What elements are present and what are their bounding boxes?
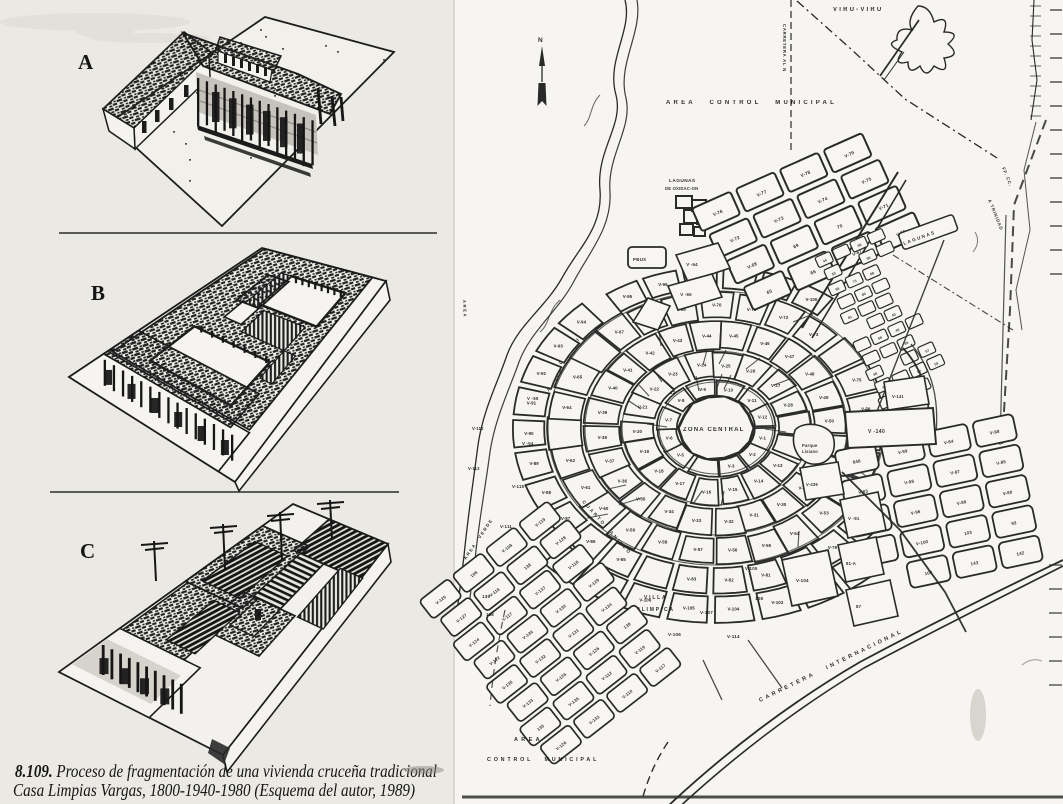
svg-text:V-89: V-89: [529, 461, 539, 466]
svg-text:V-6: V-6: [666, 435, 673, 440]
svg-text:V-79: V-79: [828, 545, 838, 550]
svg-text:139: 139: [482, 594, 491, 599]
svg-text:V-75: V-75: [852, 378, 862, 383]
svg-text:V-23: V-23: [668, 372, 678, 377]
svg-text:V-65: V-65: [573, 375, 583, 380]
svg-text:V-10: V-10: [724, 387, 734, 392]
svg-text:Parque: Parque: [802, 443, 818, 448]
svg-text:CONTROL MUNICIPAL: CONTROL MUNICIPAL: [487, 757, 599, 763]
svg-text:V-70: V-70: [712, 302, 722, 307]
svg-text:V-106: V-106: [668, 632, 681, 637]
svg-text:V-92: V-92: [537, 371, 547, 376]
svg-text:81-A: 81-A: [846, 561, 856, 566]
svg-text:V-25: V-25: [721, 363, 731, 368]
svg-text:V-88: V-88: [542, 490, 552, 495]
svg-text:V-100: V-100: [805, 297, 817, 302]
svg-text:V-49: V-49: [819, 395, 829, 400]
svg-text:V-31: V-31: [749, 513, 759, 518]
svg-text:V-36: V-36: [618, 478, 628, 483]
svg-text:V-12: V-12: [758, 414, 768, 419]
svg-text:N: N: [538, 37, 543, 44]
svg-text:V-90: V-90: [524, 431, 534, 436]
svg-text:V-27: V-27: [771, 383, 781, 388]
svg-text:V-34: V-34: [664, 509, 674, 514]
svg-text:V-58: V-58: [658, 539, 668, 544]
svg-text:V-39: V-39: [598, 410, 608, 415]
svg-text:A: A: [78, 50, 94, 74]
svg-text:V-85: V-85: [616, 557, 626, 562]
svg-text:V-91: V-91: [527, 400, 537, 405]
svg-text:V-11: V-11: [747, 398, 757, 403]
svg-text:V-48: V-48: [805, 371, 815, 376]
svg-text:VILLA: VILLA: [644, 595, 667, 601]
svg-text:V-20: V-20: [633, 429, 643, 434]
svg-text:V-94: V-94: [577, 320, 587, 325]
svg-text:V -54: V -54: [522, 441, 534, 446]
svg-text:V-56: V-56: [728, 547, 738, 552]
svg-text:V-30: V-30: [777, 502, 787, 507]
svg-text:ZONA CENTRAL: ZONA CENTRAL: [683, 427, 745, 433]
svg-text:V-5: V-5: [677, 452, 684, 457]
svg-text:8.109. Proceso de fragmentació: 8.109. Proceso de fragmentación de una v…: [15, 761, 437, 781]
svg-text:AREA: AREA: [462, 300, 468, 318]
svg-text:12: 12: [670, 390, 676, 395]
svg-text:Casa Limpias Vargas, 1800-1940: Casa Limpias Vargas, 1800-1940-1980 (Esq…: [13, 780, 415, 800]
svg-text:V-105: V-105: [745, 566, 758, 571]
svg-text:V-113: V-113: [468, 466, 480, 471]
svg-text:V-37: V-37: [605, 459, 615, 464]
svg-text:V -91: V -91: [848, 516, 860, 521]
svg-text:V-96: V-96: [658, 282, 668, 287]
svg-text:V-81: V-81: [761, 572, 771, 577]
svg-text:V-104: V-104: [796, 578, 809, 583]
svg-text:V-35: V-35: [636, 496, 646, 501]
svg-text:V-45: V-45: [729, 333, 739, 338]
svg-text:V-46: V-46: [760, 341, 770, 346]
svg-text:V-55: V-55: [762, 543, 772, 548]
svg-text:V -140: V -140: [868, 429, 885, 435]
svg-text:V-50: V-50: [825, 418, 835, 423]
svg-text:V-86: V-86: [586, 539, 596, 544]
svg-text:AREA CONTROL MUNICIPAL: AREA CONTROL MUNICIPAL: [666, 100, 837, 106]
svg-text:V-111: V-111: [500, 524, 512, 529]
svg-text:V-95: V-95: [623, 294, 633, 299]
svg-text:V-112: V-112: [472, 426, 484, 431]
svg-text:V-32: V-32: [724, 519, 734, 524]
svg-text:V-33: V-33: [692, 518, 702, 523]
svg-text:138: 138: [486, 612, 494, 617]
svg-text:V-115: V-115: [512, 484, 525, 489]
svg-text:PBUS: PBUS: [633, 257, 646, 262]
svg-text:C: C: [80, 539, 95, 563]
svg-text:V-60: V-60: [599, 506, 609, 511]
svg-text:V-83: V-83: [687, 577, 697, 582]
svg-text:V-141: V-141: [892, 394, 904, 399]
svg-text:V-14: V-14: [754, 479, 764, 484]
svg-text:V-8: V-8: [678, 398, 685, 403]
svg-text:AREA: AREA: [514, 737, 543, 743]
svg-text:V-67: V-67: [615, 330, 625, 335]
svg-text:V-21: V-21: [638, 405, 648, 410]
svg-text:Lisiano: Lisiano: [802, 449, 818, 454]
svg-text:V-62: V-62: [566, 458, 576, 463]
svg-text:B: B: [91, 281, 105, 305]
svg-text:V-64: V-64: [562, 405, 572, 410]
svg-text:V-41: V-41: [623, 367, 633, 372]
svg-text:V-53: V-53: [819, 511, 829, 516]
svg-text:V-7: V-7: [665, 417, 672, 422]
svg-text:VIRU-VIRU: VIRU-VIRU: [833, 7, 883, 13]
svg-text:V-22: V-22: [650, 386, 660, 391]
svg-text:OLIMPICA: OLIMPICA: [636, 607, 675, 613]
svg-text:V-2: V-2: [749, 452, 756, 457]
svg-text:V-24: V-24: [697, 363, 707, 368]
svg-text:V-42: V-42: [645, 350, 655, 355]
svg-text:V-43: V-43: [673, 338, 683, 343]
svg-text:V-44: V-44: [702, 333, 712, 338]
svg-text:V-105: V-105: [683, 606, 695, 611]
svg-text:V-61: V-61: [581, 485, 591, 490]
svg-text:V-26: V-26: [746, 369, 756, 374]
svg-text:V-72: V-72: [779, 315, 789, 320]
svg-text:V-107: V-107: [700, 610, 713, 615]
svg-text:V-59: V-59: [626, 527, 636, 532]
svg-text:87: 87: [856, 604, 862, 609]
svg-text:V-57: V-57: [693, 547, 703, 552]
svg-text:V-93: V-93: [553, 344, 563, 349]
svg-text:V -55: V -55: [527, 396, 539, 401]
svg-text:V-16: V-16: [702, 489, 712, 494]
svg-text:V-104: V-104: [727, 606, 739, 611]
svg-text:V-3: V-3: [728, 463, 735, 468]
svg-text:V-1: V-1: [759, 435, 766, 440]
svg-text:V-54: V-54: [790, 531, 800, 536]
svg-text:V-114: V-114: [727, 634, 740, 639]
svg-text:V-15: V-15: [728, 487, 738, 492]
svg-text:V-18: V-18: [654, 469, 664, 474]
svg-text:V-19: V-19: [640, 449, 650, 454]
svg-text:108: 108: [755, 596, 764, 601]
svg-text:V-40: V-40: [608, 386, 618, 391]
svg-text:LAGUNAS: LAGUNAS: [669, 178, 696, 184]
svg-text:V -64: V -64: [686, 262, 698, 267]
svg-text:V -65: V -65: [680, 292, 692, 297]
svg-text:DE OXIDAC-ON: DE OXIDAC-ON: [665, 186, 698, 191]
svg-text:V-439: V-439: [806, 482, 818, 487]
svg-text:V-9: V-9: [699, 387, 706, 392]
svg-text:V-103: V-103: [771, 600, 783, 605]
svg-text:V-47: V-47: [785, 354, 795, 359]
svg-text:V-82: V-82: [724, 578, 734, 583]
svg-text:V-38: V-38: [598, 435, 608, 440]
svg-text:CARRETERA AL N: CARRETERA AL N: [782, 24, 787, 72]
svg-text:V-13: V-13: [773, 463, 783, 468]
svg-text:V-28: V-28: [783, 403, 793, 408]
svg-text:V-17: V-17: [675, 481, 685, 486]
